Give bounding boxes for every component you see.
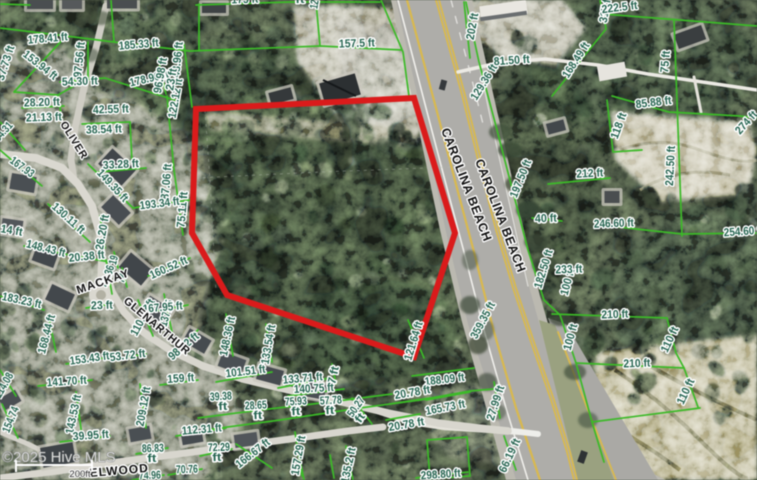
svg-text:157.5 ft: 157.5 ft — [339, 37, 376, 50]
svg-text:54.30 ft: 54.30 ft — [62, 75, 99, 88]
svg-text:75 ft: 75 ft — [659, 50, 673, 73]
svg-text:ft: ft — [325, 405, 335, 417]
svg-text:210 ft: 210 ft — [623, 358, 651, 371]
svg-text:40 ft: 40 ft — [535, 213, 558, 226]
svg-text:12: 12 — [308, 0, 321, 10]
svg-text:42.55 ft: 42.55 ft — [93, 103, 130, 116]
svg-text:ft: ft — [291, 406, 301, 418]
svg-text:210 ft: 210 ft — [601, 309, 629, 322]
svg-text:175 ft: 175 ft — [231, 0, 259, 6]
svg-text:ft: ft — [218, 401, 228, 413]
svg-text:33.28 ft: 33.28 ft — [103, 158, 140, 172]
svg-text:39.95 ft: 39.95 ft — [72, 429, 109, 443]
svg-text:ft: ft — [212, 452, 222, 464]
svg-text:242.50 ft: 242.50 ft — [664, 145, 678, 186]
svg-text:38.54 ft: 38.54 ft — [86, 123, 123, 136]
svg-text:23 ft: 23 ft — [91, 300, 114, 313]
svg-text:212 ft: 212 ft — [576, 167, 604, 180]
svg-text:140.75 ft: 140.75 ft — [294, 382, 335, 396]
svg-text:246.60 ft: 246.60 ft — [594, 217, 635, 230]
svg-text:159 ft: 159 ft — [167, 372, 195, 386]
svg-text:ft: ft — [253, 410, 263, 422]
svg-text:21.13 ft: 21.13 ft — [26, 111, 63, 124]
svg-text:28.20 ft: 28.20 ft — [24, 96, 61, 109]
svg-text:ft: ft — [295, 0, 305, 6]
svg-text:70.76: 70.76 — [176, 464, 198, 477]
svg-text:ft: ft — [147, 453, 157, 465]
svg-text:©2025 Hive MLS: ©2025 Hive MLS — [2, 449, 116, 466]
svg-text:200ft: 200ft — [69, 469, 90, 480]
svg-text:233 ft: 233 ft — [555, 264, 583, 277]
svg-text:81.50 ft: 81.50 ft — [493, 54, 530, 68]
svg-text:298.80 ft: 298.80 ft — [420, 468, 461, 480]
svg-text:254.60 ft: 254.60 ft — [723, 225, 757, 240]
